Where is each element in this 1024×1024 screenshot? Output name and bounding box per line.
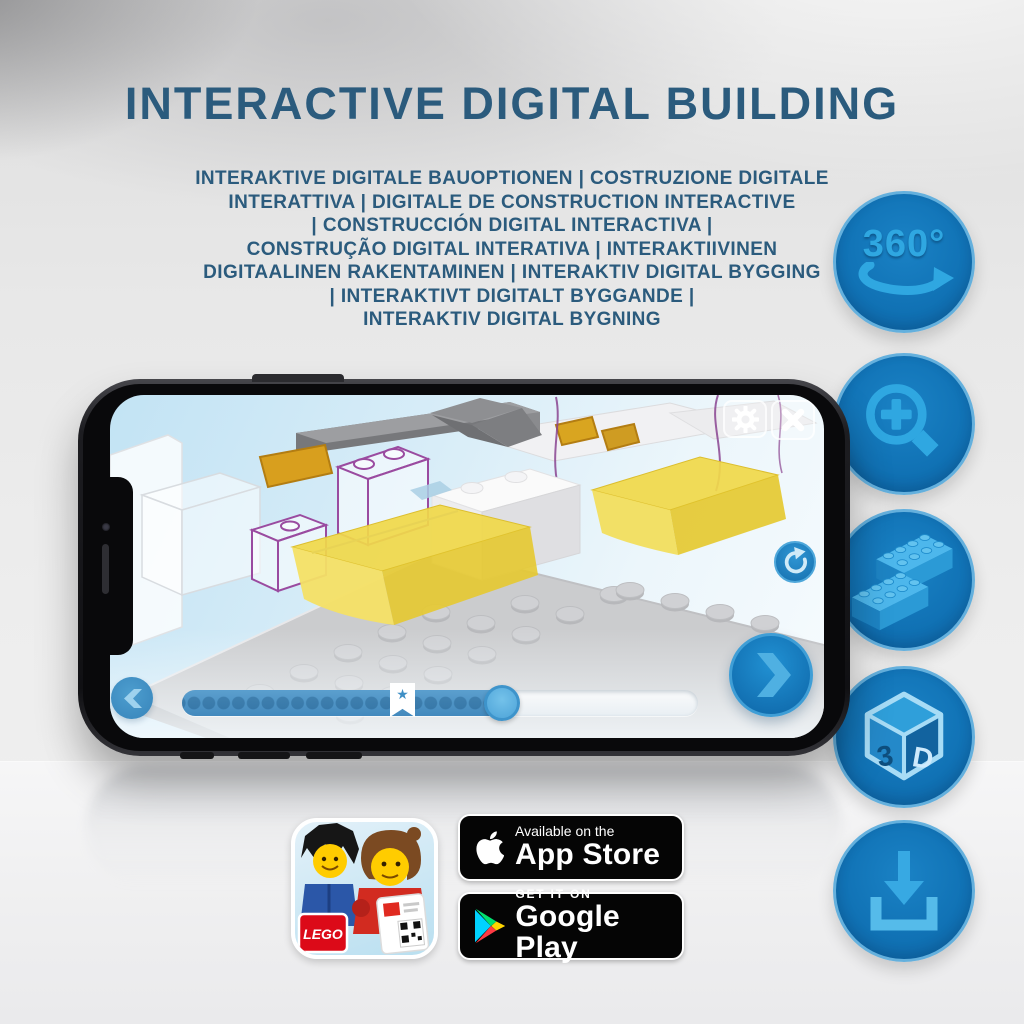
phone-mockup: ★	[78, 379, 850, 756]
3d-cube-icon: 3 D	[853, 686, 955, 788]
phone-speaker-slot	[238, 752, 290, 759]
brick-steps-icon	[852, 528, 956, 632]
lego-app-icon[interactable]: LEGO	[291, 818, 438, 959]
download-icon	[854, 841, 954, 941]
app-store-label: App Store	[515, 839, 660, 871]
feature-bricks	[833, 509, 975, 651]
front-camera	[102, 523, 110, 531]
progress-fill	[182, 690, 512, 716]
phone-speaker-slot	[306, 752, 362, 759]
apple-icon	[476, 829, 504, 866]
phone-notch	[110, 477, 133, 655]
reset-rotation-button[interactable]	[774, 541, 816, 583]
next-step-button[interactable]	[729, 633, 813, 717]
google-play-badge[interactable]: GET IT ON Google Play	[458, 892, 684, 960]
lower-brick	[852, 573, 928, 631]
google-play-icon	[475, 908, 505, 944]
chevron-right-icon	[750, 652, 792, 698]
chevron-left-icon	[123, 688, 142, 709]
previous-step-button[interactable]	[111, 677, 153, 719]
app-icon-artwork: LEGO	[295, 822, 434, 955]
app-store-badge[interactable]: Available on the App Store	[458, 814, 684, 881]
settings-button[interactable]	[723, 400, 767, 438]
marketing-page: INTERACTIVE DIGITAL BUILDING INTERAKTIVE…	[0, 0, 1024, 1024]
lego-3d-model-viewport[interactable]	[110, 395, 824, 738]
google-play-label: Google Play	[515, 901, 682, 964]
page-title: INTERACTIVE DIGITAL BUILDING	[0, 78, 1024, 130]
phone-side-button	[252, 374, 344, 382]
boy-face	[313, 844, 347, 878]
yellow-slope-brick	[592, 457, 786, 555]
girl-face	[371, 848, 409, 886]
feature-download	[833, 820, 975, 962]
app-store-tagline: Available on the	[515, 824, 660, 839]
close-icon	[781, 408, 805, 432]
phone-speaker-slot	[180, 752, 214, 759]
phone-bezel: ★	[83, 384, 845, 751]
subtitle-line: INTERAKTIVE DIGITALE BAUOPTIONEN | COSTR…	[0, 167, 1024, 191]
rotate-icon	[780, 547, 810, 577]
rotation-arrow-icon	[854, 262, 954, 296]
build-progress-slider[interactable]: ★	[182, 690, 698, 716]
slider-handle[interactable]	[484, 685, 520, 721]
qr-card	[376, 894, 429, 955]
feature-3d-view: 3 D	[833, 666, 975, 808]
360-label: 360°	[863, 226, 946, 262]
feature-zoom	[833, 353, 975, 495]
lego-logo-text: LEGO	[303, 926, 343, 942]
cube-letter-d: D	[910, 741, 936, 776]
gear-icon	[732, 406, 759, 433]
zoom-in-icon	[856, 376, 952, 472]
earpiece-speaker	[102, 544, 109, 594]
feature-360-rotation: 360°	[833, 191, 975, 333]
google-play-tagline: GET IT ON	[515, 888, 682, 901]
app-screen: ★	[110, 395, 824, 738]
close-button[interactable]	[771, 400, 815, 440]
